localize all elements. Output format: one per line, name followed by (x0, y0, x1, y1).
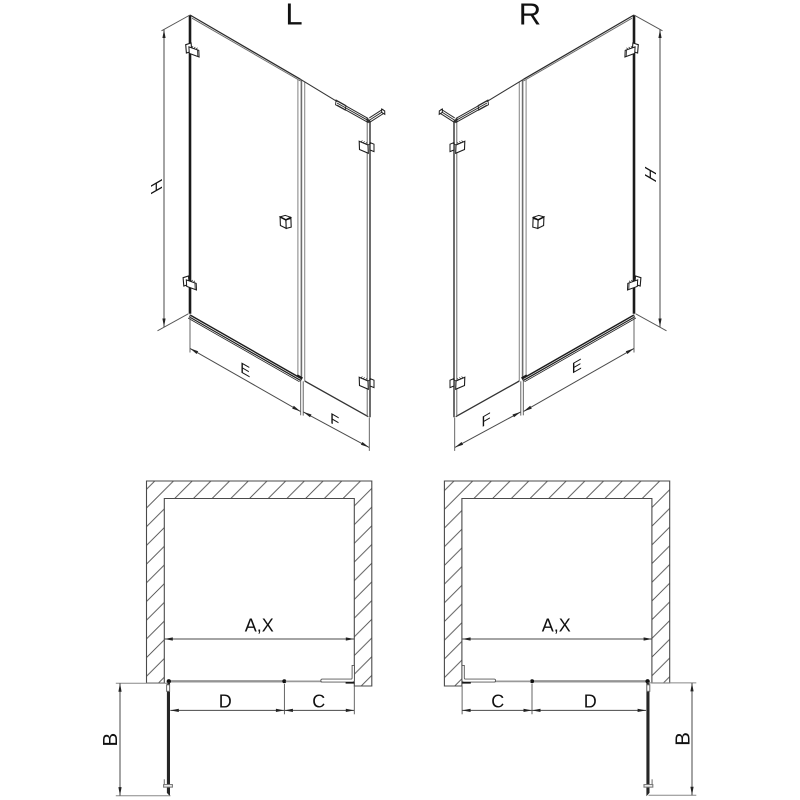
svg-text:F: F (482, 409, 491, 431)
svg-text:D: D (219, 692, 232, 712)
svg-text:F: F (330, 410, 339, 432)
svg-text:L: L (285, 0, 302, 31)
svg-text:H: H (641, 163, 660, 185)
svg-text:R: R (519, 0, 541, 31)
svg-text:H: H (147, 176, 166, 198)
svg-text:D: D (584, 692, 597, 712)
svg-text:B: B (671, 732, 694, 746)
svg-text:B: B (99, 733, 122, 747)
svg-text:A,X: A,X (542, 616, 571, 636)
svg-text:E: E (572, 355, 582, 378)
svg-text:C: C (491, 692, 504, 712)
svg-text:C: C (312, 692, 325, 712)
svg-text:A,X: A,X (245, 616, 274, 636)
